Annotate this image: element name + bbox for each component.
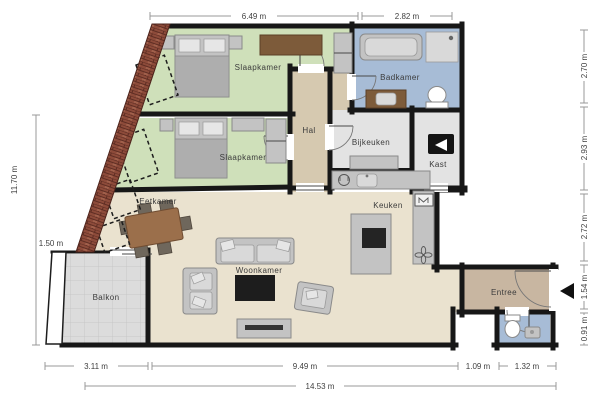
dim-left-total: 11.70 m — [10, 115, 40, 345]
room-label-slaapkamer-2: Slaapkamer — [220, 153, 267, 162]
toilet — [505, 315, 520, 338]
dining-chair — [157, 242, 172, 255]
svg-text:2.82 m: 2.82 m — [395, 12, 420, 21]
svg-text:2.93 m: 2.93 m — [580, 135, 589, 160]
room-label-entree: Entree — [491, 288, 517, 297]
floor-plan-canvas: Slaapkamer Slaapkamer Badkamer Hal Bijke… — [0, 0, 600, 400]
desk — [260, 35, 322, 55]
bijkeuken-fixtures — [350, 156, 398, 169]
counter — [350, 156, 398, 169]
bed — [175, 35, 229, 97]
dim-top-2: 2.82 m — [362, 10, 452, 22]
dim-bottom-2: 9.49 m — [152, 360, 458, 372]
dresser — [232, 118, 264, 131]
nightstand — [228, 36, 242, 49]
floor-plan-page: Slaapkamer Slaapkamer Badkamer Hal Bijke… — [0, 0, 600, 400]
wardrobe — [334, 33, 352, 73]
bathtub — [360, 34, 422, 60]
svg-text:0.91 m: 0.91 m — [580, 316, 589, 341]
dim-right-5: 0.91 m — [579, 313, 589, 345]
entrance-arrow-icon — [560, 283, 574, 299]
small-sink — [525, 327, 540, 338]
dim-top-1: 6.49 m — [150, 10, 358, 22]
kast-fixtures — [428, 134, 454, 154]
dim-bottom-1: 3.11 m — [45, 360, 148, 372]
room-label-kast: Kast — [429, 160, 447, 169]
room-label-eetkamer: Eetkamer — [139, 197, 176, 206]
dim-right-1: 2.70 m — [579, 30, 589, 103]
dim-right-4: 1.54 m — [579, 265, 589, 309]
svg-text:14.53 m: 14.53 m — [306, 382, 335, 391]
bed — [175, 118, 227, 178]
shower — [426, 32, 458, 62]
svg-text:2.72 m: 2.72 m — [580, 214, 589, 239]
svg-text:1.50 m: 1.50 m — [39, 239, 64, 248]
dim-bottom-total: 14.53 m — [85, 380, 556, 392]
svg-text:1.54 m: 1.54 m — [580, 274, 589, 299]
armchair — [294, 281, 334, 314]
meter-cabinet-icon — [428, 134, 454, 154]
svg-text:2.70 m: 2.70 m — [580, 53, 589, 78]
dim-bottom-3: 1.09 m — [459, 360, 498, 372]
toilet — [426, 87, 448, 109]
room-label-hal: Hal — [302, 126, 315, 135]
svg-text:3.11 m: 3.11 m — [84, 362, 108, 371]
svg-text:9.49 m: 9.49 m — [293, 362, 318, 371]
room-label-keuken: Keuken — [373, 201, 403, 210]
wardrobe — [266, 119, 286, 163]
dim-left-balcony: 1.50 m — [39, 239, 64, 248]
nightstand — [160, 119, 173, 131]
room-label-slaapkamer-1: Slaapkamer — [235, 63, 282, 72]
svg-text:11.70 m: 11.70 m — [10, 166, 19, 195]
oven-icon — [415, 194, 433, 206]
room-label-woonkamer: Woonkamer — [236, 266, 283, 275]
svg-text:6.49 m: 6.49 m — [242, 12, 267, 21]
sofa — [216, 238, 294, 264]
vanity-sink — [366, 90, 406, 108]
loveseat — [183, 268, 217, 314]
rug — [235, 275, 275, 301]
kitchen-island — [351, 214, 391, 274]
kitchen-sink — [357, 174, 377, 187]
kitchen-counter-top — [332, 171, 430, 189]
dim-right-3: 2.72 m — [579, 194, 589, 261]
svg-text:1.09 m: 1.09 m — [466, 362, 491, 371]
room-label-balkon: Balkon — [93, 293, 120, 302]
dim-right-2: 2.93 m — [579, 107, 589, 190]
tv-cabinet — [237, 319, 291, 338]
balcony-railing — [46, 252, 66, 344]
cooktop — [362, 228, 386, 248]
svg-text:1.32 m: 1.32 m — [515, 362, 540, 371]
room-label-badkamer: Badkamer — [380, 73, 420, 82]
room-label-bijkeuken: Bijkeuken — [352, 138, 390, 147]
dim-bottom-4: 1.32 m — [499, 360, 556, 372]
